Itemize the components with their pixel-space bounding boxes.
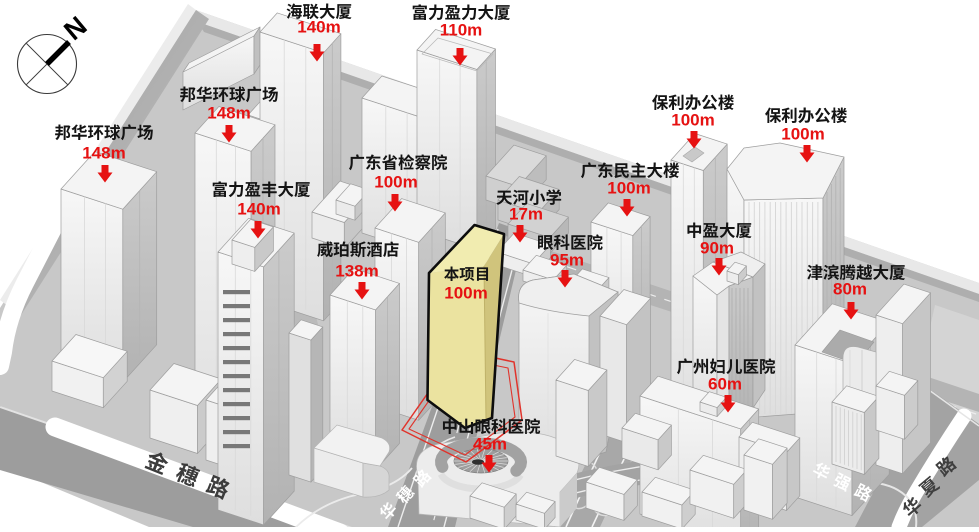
svg-text:90m: 90m (700, 239, 734, 258)
svg-text:17m: 17m (509, 205, 543, 224)
svg-text:60m: 60m (708, 375, 742, 394)
svg-text:148m: 148m (82, 144, 125, 163)
svg-text:100m: 100m (781, 125, 824, 144)
svg-text:100m: 100m (671, 111, 714, 130)
svg-text:100m: 100m (607, 179, 650, 198)
svg-text:95m: 95m (550, 251, 584, 270)
svg-text:80m: 80m (833, 280, 867, 299)
svg-text:110m: 110m (440, 21, 483, 40)
svg-text:100m: 100m (374, 173, 417, 192)
svg-text:45m: 45m (473, 435, 507, 454)
svg-text:140m: 140m (237, 200, 280, 219)
svg-text:100m: 100m (444, 284, 487, 303)
svg-text:148m: 148m (207, 104, 250, 123)
svg-text:140m: 140m (297, 18, 340, 37)
svg-text:138m: 138m (335, 262, 378, 281)
